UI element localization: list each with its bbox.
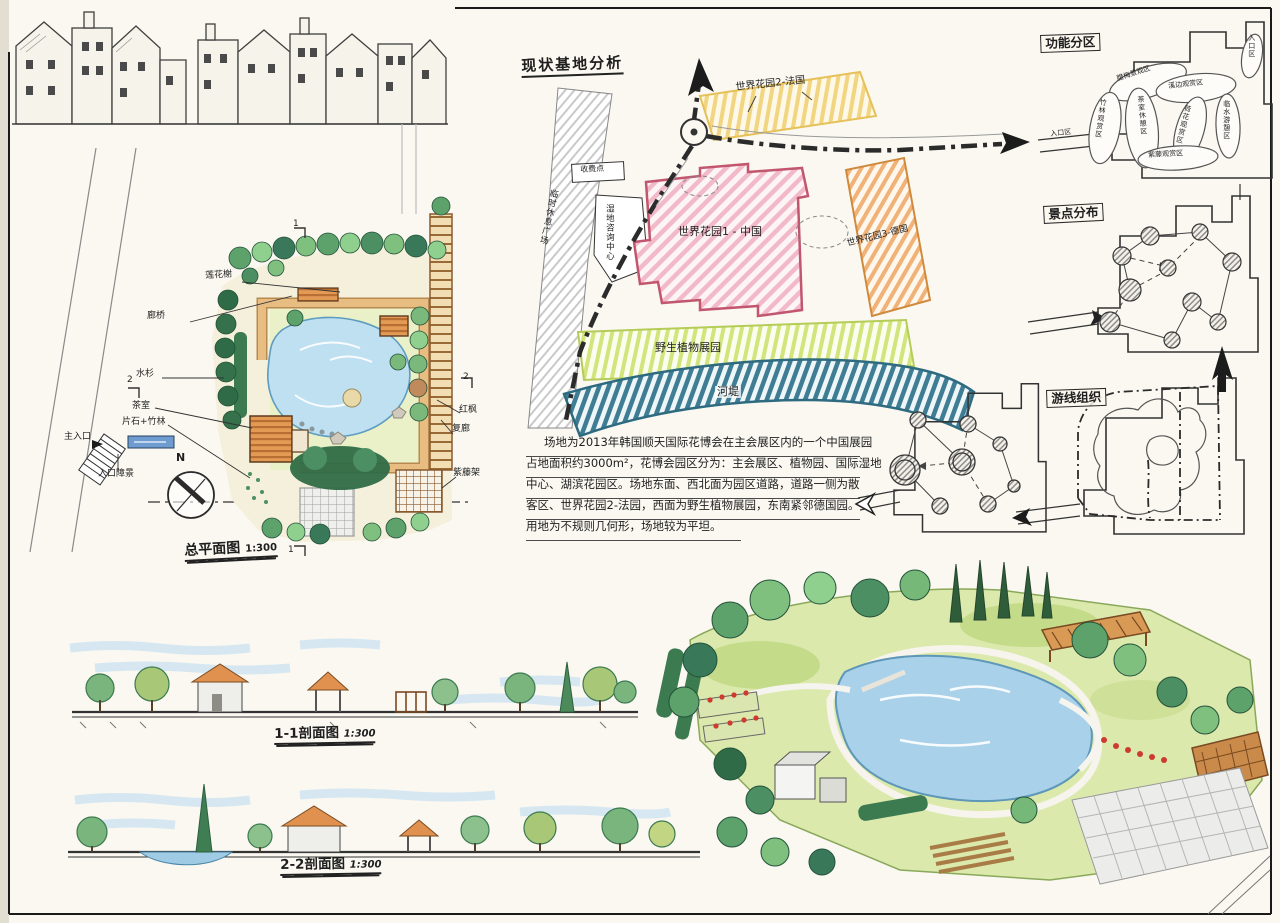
- road-arrow-north: [688, 58, 714, 96]
- section-mark-2-right: 2: [463, 373, 469, 383]
- section2-pavilion: [400, 820, 438, 852]
- scenic-nodes: [1100, 224, 1241, 348]
- zone-label-garden1: 世界花园1 - 中国: [678, 226, 762, 238]
- section-2-2-drawing: [68, 784, 700, 865]
- toll-label: 收费点: [580, 165, 604, 175]
- section-1-1-title-text: 1-1剖面图: [274, 725, 339, 742]
- section-2-2-title: 2-2剖面图 1:300: [280, 856, 382, 876]
- section-mark-2-left: 2: [127, 376, 133, 386]
- perspective-rendering: [655, 560, 1268, 884]
- wetland-center-label: 湿地咨询中心: [604, 204, 613, 278]
- sky-wash-2: [75, 793, 670, 825]
- description-line: 用地为不规则几何形，场地较为平坦。: [526, 520, 741, 541]
- route-organization-title: 游线组织: [1046, 388, 1107, 408]
- label-lotus-pavilion: 莲花榭: [205, 271, 232, 282]
- route-arrow-up: [1212, 346, 1233, 392]
- section-mark-1-bottom: 1: [288, 546, 294, 556]
- label-corridor-bridge: 廊桥: [147, 312, 165, 322]
- label-wisteria-trellis: 紫藤架: [453, 469, 480, 479]
- wisteria-trellis-structure: [396, 470, 442, 512]
- landform-curves: [1094, 399, 1206, 514]
- label-double-corridor: 复廊: [452, 425, 470, 435]
- section-mark-1-top: 1: [293, 220, 299, 230]
- description-line: 客区、世界花园2-法园，西面为野生植物展园，东南紧邻德国园。: [526, 499, 860, 520]
- lotus-pavilion-building: [380, 316, 408, 336]
- section-1-1-drawing: [70, 643, 638, 728]
- section2-house: [282, 806, 346, 852]
- road-arrow-east: [1000, 132, 1030, 154]
- label-entrance-screen: 入口障景: [98, 470, 134, 480]
- north-letter: N: [176, 452, 185, 464]
- section-1-1-title: 1-1剖面图 1:300: [274, 725, 376, 745]
- label-tea-house: 茶室: [132, 402, 150, 412]
- river-bank-label: 河堤: [715, 386, 741, 398]
- site-analysis-title: 现状基地分析: [521, 54, 624, 77]
- master-plan-scale: 1:300: [245, 542, 277, 555]
- description-line: 中心、湖滨花园区。场地东面、西北面为园区道路，道路一侧为散: [526, 478, 860, 499]
- tea-house-building: [250, 416, 292, 462]
- functional-zoning-title: 功能分区: [1040, 33, 1101, 53]
- label-main-entrance: 主入口: [64, 433, 91, 443]
- bubble-waterside: 临水游憩区: [1222, 100, 1230, 152]
- section1-gazebo: [308, 672, 348, 712]
- site-description: 场地为2013年韩国顺天国际花博会在主会展区内的一个中国展园 占地面积约3000…: [526, 436, 860, 541]
- design-board: 现状基地分析 世界花园2-法国 世界花园1 - 中国 世界花园3-德国 野生植物…: [0, 0, 1280, 923]
- scenic-distribution-title: 景点分布: [1043, 203, 1104, 224]
- section-1-1-scale: 1:300: [344, 728, 376, 740]
- section-2-2-title-text: 2-2剖面图: [280, 856, 345, 873]
- route-organization-diagram: [1012, 346, 1244, 534]
- section-2-2-scale: 1:300: [350, 859, 382, 871]
- label-stone-bamboo: 片石+竹林: [122, 418, 166, 428]
- description-line: 占地面积约3000m²，花博会园区分为：主会展区、植物园、国际湿地: [526, 457, 860, 478]
- route-lines: [1078, 386, 1220, 520]
- section1-pergola: [396, 692, 426, 712]
- zone-garden1-china: [634, 164, 808, 316]
- section2-conifer: [196, 784, 212, 852]
- label-metasequoia: 水杉: [136, 370, 154, 380]
- dashed-study-cloud: [796, 216, 848, 248]
- description-line: 场地为2013年韩国顺天国际花博会在主会展区内的一个中国展园: [526, 436, 860, 457]
- building-elevation-sketches: [12, 12, 448, 124]
- section2-pond: [140, 852, 232, 865]
- north-compass: [168, 472, 214, 518]
- pond-island: [343, 389, 361, 407]
- section1-conifer: [560, 662, 574, 712]
- zone-label-wild-plants: 野生植物展园: [655, 342, 721, 354]
- master-plan-title-text: 总平面图: [184, 540, 241, 559]
- bubble-entrance-top: 入口区: [1247, 34, 1255, 74]
- corner-fold-mark: [1208, 856, 1270, 914]
- label-red-maple: 红枫: [459, 406, 477, 416]
